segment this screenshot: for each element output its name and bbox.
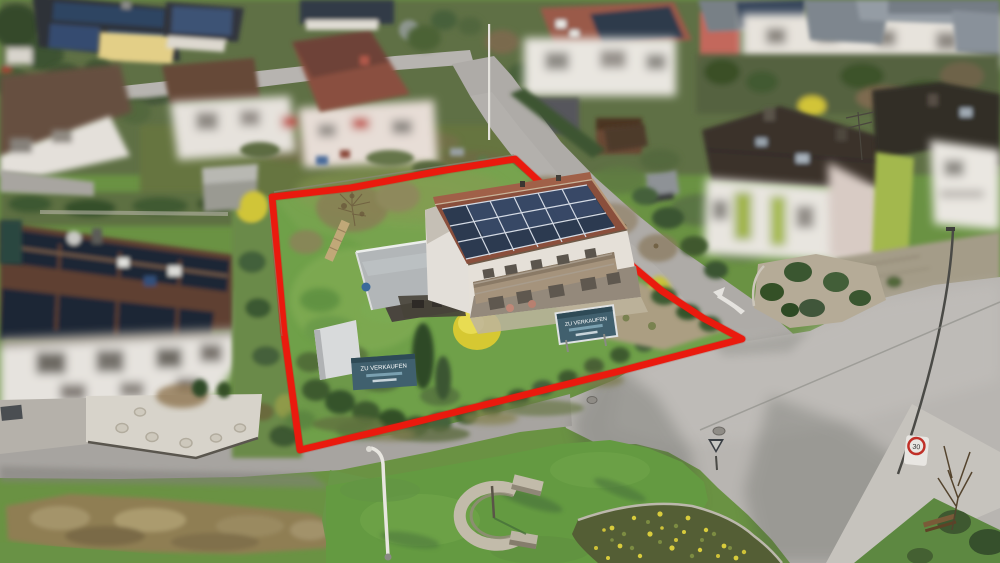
svg-text:30: 30 bbox=[912, 444, 921, 452]
